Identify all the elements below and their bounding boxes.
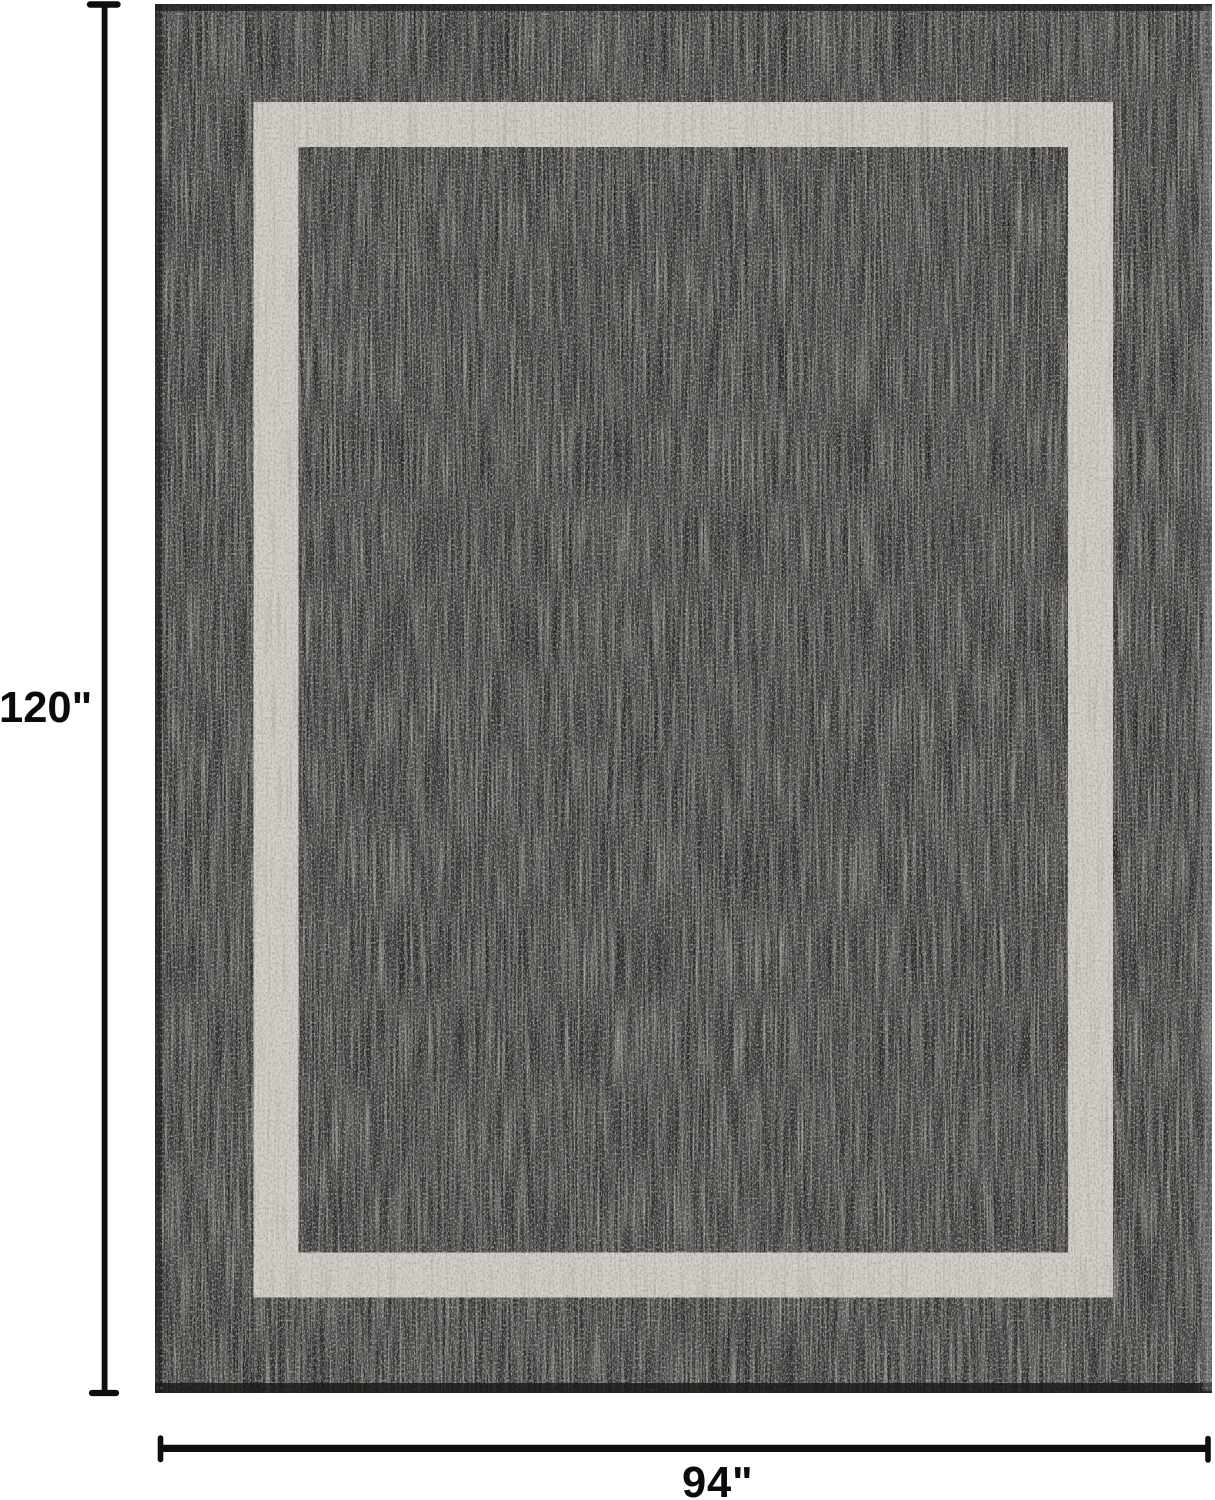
svg-text:94": 94" (682, 1459, 753, 1500)
svg-text:120": 120" (0, 684, 92, 732)
